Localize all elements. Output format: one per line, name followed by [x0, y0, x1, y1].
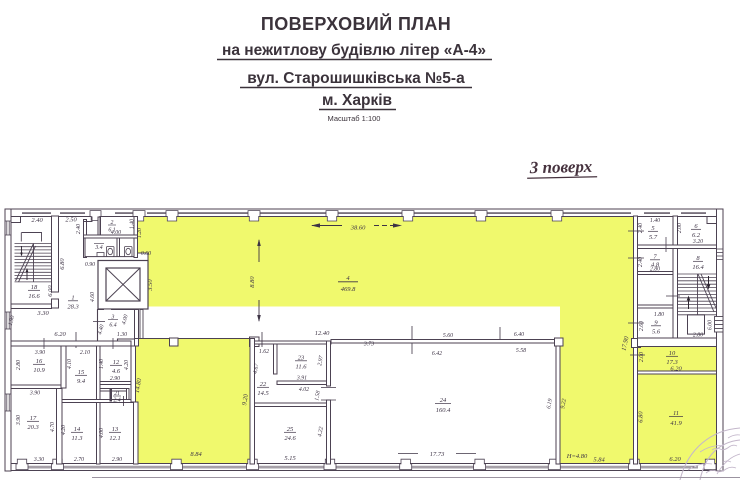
svg-text:Н=4.80: Н=4.80 — [566, 453, 588, 460]
svg-text:4.10: 4.10 — [66, 359, 73, 369]
svg-text:0.60: 0.60 — [141, 251, 151, 257]
svg-text:4.20: 4.20 — [123, 360, 130, 370]
svg-text:2.80: 2.80 — [650, 267, 660, 273]
svg-text:2.70: 2.70 — [74, 457, 84, 463]
svg-text:5.7: 5.7 — [649, 234, 658, 241]
svg-text:11: 11 — [673, 410, 679, 417]
svg-text:1.40: 1.40 — [650, 217, 660, 224]
svg-text:2.60: 2.60 — [639, 321, 645, 331]
svg-text:ПОВЕРХОВИЙ ПЛАН: ПОВЕРХОВИЙ ПЛАН — [261, 13, 451, 34]
svg-text:160.4: 160.4 — [436, 407, 451, 414]
svg-text:14.5: 14.5 — [257, 390, 269, 397]
svg-text:м. Харків: м. Харків — [322, 92, 392, 109]
svg-text:5.6: 5.6 — [652, 329, 661, 336]
svg-text:24: 24 — [440, 397, 447, 404]
svg-text:0.90: 0.90 — [85, 262, 95, 268]
svg-text:3.30: 3.30 — [33, 457, 44, 463]
svg-text:11.6: 11.6 — [296, 364, 308, 371]
svg-text:12.40: 12.40 — [315, 330, 330, 337]
svg-text:5.60: 5.60 — [443, 333, 453, 339]
svg-text:4.00: 4.00 — [111, 229, 121, 236]
svg-text:16.6: 16.6 — [28, 293, 40, 300]
svg-text:2.90: 2.90 — [110, 376, 120, 382]
svg-text:3.20: 3.20 — [692, 239, 703, 245]
svg-text:3.50: 3.50 — [147, 279, 154, 292]
svg-text:28.3: 28.3 — [67, 304, 79, 311]
svg-text:3.4: 3.4 — [94, 244, 102, 251]
svg-text:2.40: 2.40 — [637, 257, 644, 267]
svg-text:469.8: 469.8 — [341, 286, 356, 293]
svg-text:10.9: 10.9 — [33, 367, 45, 374]
svg-text:6.80: 6.80 — [638, 411, 645, 423]
svg-text:вул. Старошишківська №5-а: вул. Старошишківська №5-а — [247, 70, 465, 87]
svg-text:20.3: 20.3 — [27, 424, 39, 431]
svg-text:1.20: 1.20 — [137, 228, 143, 238]
svg-text:6.20: 6.20 — [669, 456, 681, 463]
svg-text:2.80: 2.80 — [16, 360, 22, 370]
svg-text:2.90: 2.90 — [112, 457, 122, 463]
svg-text:6.4: 6.4 — [109, 322, 116, 329]
svg-text:8.84: 8.84 — [190, 451, 202, 458]
svg-text:3.73: 3.73 — [363, 342, 374, 348]
svg-text:2.00: 2.00 — [639, 352, 645, 362]
svg-text:1.40: 1.40 — [129, 219, 136, 229]
svg-text:2.10: 2.10 — [80, 350, 90, 356]
svg-text:6.20: 6.20 — [54, 331, 66, 338]
svg-text:Масштаб 1:100: Масштаб 1:100 — [328, 114, 381, 123]
svg-text:5.15: 5.15 — [284, 455, 296, 462]
svg-text:6.80: 6.80 — [59, 258, 66, 270]
svg-text:8.80: 8.80 — [249, 276, 256, 288]
svg-text:2.40: 2.40 — [31, 217, 43, 224]
svg-text:6.40: 6.40 — [514, 331, 524, 338]
svg-text:16.4: 16.4 — [692, 264, 704, 271]
svg-text:6.00: 6.00 — [708, 320, 714, 330]
svg-text:6.42: 6.42 — [432, 350, 442, 357]
svg-text:24.6: 24.6 — [284, 435, 296, 442]
svg-text:4.02: 4.02 — [299, 386, 309, 393]
svg-text:1.80: 1.80 — [654, 312, 664, 318]
svg-text:3 поверх: 3 поверх — [529, 157, 593, 177]
svg-text:2.4: 2.4 — [113, 397, 120, 404]
svg-text:6.20: 6.20 — [670, 366, 682, 373]
svg-text:2.80: 2.80 — [693, 333, 703, 339]
svg-text:5.84: 5.84 — [593, 457, 605, 464]
svg-text:12.1: 12.1 — [109, 435, 120, 442]
svg-text:4.20: 4.20 — [60, 425, 67, 435]
svg-text:1.40: 1.40 — [98, 359, 105, 369]
svg-text:4.60: 4.60 — [89, 292, 96, 302]
svg-text:3.90: 3.90 — [16, 415, 22, 426]
svg-text:2.40: 2.40 — [637, 223, 644, 233]
svg-text:3.90: 3.90 — [34, 350, 45, 356]
svg-text:6.00: 6.00 — [47, 285, 54, 297]
svg-text:2.40: 2.40 — [75, 224, 82, 234]
svg-text:3.90: 3.90 — [29, 391, 40, 397]
svg-text:4.00: 4.00 — [98, 428, 105, 438]
svg-text:17.73: 17.73 — [430, 451, 445, 458]
svg-text:5.58: 5.58 — [516, 348, 526, 354]
svg-text:9.4: 9.4 — [77, 378, 86, 385]
svg-text:1.30: 1.30 — [117, 332, 127, 338]
svg-text:2.50: 2.50 — [65, 217, 77, 224]
svg-text:на нежитлову будівлю літер «А-: на нежитлову будівлю літер «А-4» — [222, 42, 486, 59]
svg-text:4.6: 4.6 — [112, 368, 121, 375]
svg-text:3.30: 3.30 — [36, 310, 49, 317]
svg-text:2.00: 2.00 — [677, 223, 683, 233]
svg-text:1.62: 1.62 — [259, 349, 269, 355]
svg-text:11.3: 11.3 — [72, 435, 84, 442]
svg-text:38.60: 38.60 — [350, 225, 366, 232]
svg-text:4.70: 4.70 — [49, 422, 56, 432]
svg-text:41.9: 41.9 — [670, 420, 682, 427]
svg-text:3.91: 3.91 — [296, 376, 307, 382]
svg-text:6.2: 6.2 — [692, 232, 701, 239]
